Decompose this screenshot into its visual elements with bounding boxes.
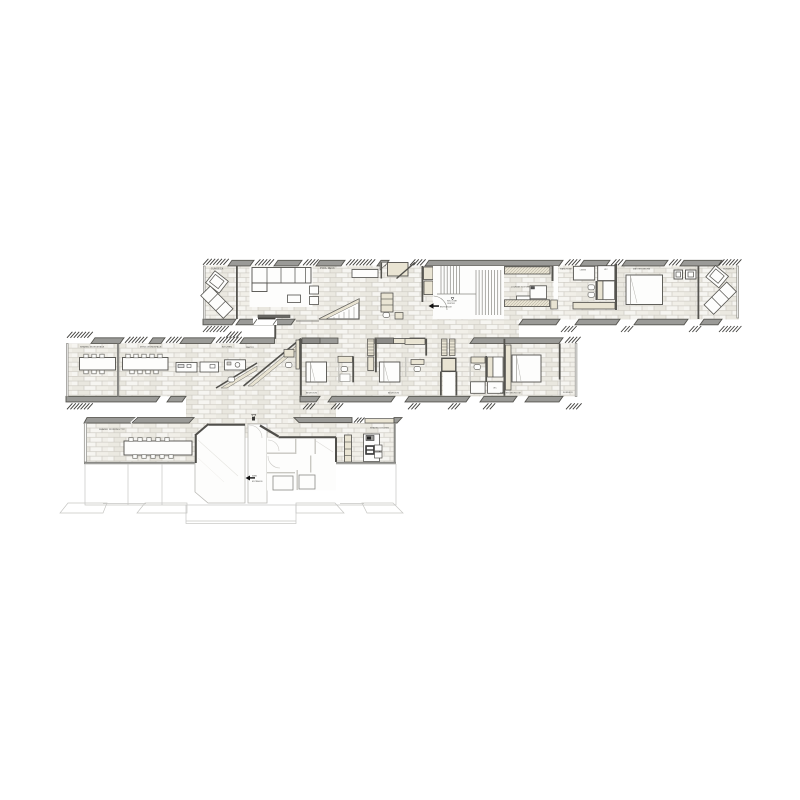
svg-text:BEDROOM: BEDROOM bbox=[306, 392, 317, 394]
svg-text:LINEN: LINEN bbox=[580, 270, 587, 272]
svg-text:SUNDECK: SUNDECK bbox=[723, 269, 735, 271]
svg-text:SUNDECK: SUNDECK bbox=[211, 268, 224, 271]
svg-text:LOUNGE TO TYPE: LOUNGE TO TYPE bbox=[511, 286, 530, 288]
svg-text:MAIN: MAIN bbox=[252, 475, 257, 478]
svg-text:MTNG WORKSPACE: MTNG WORKSPACE bbox=[140, 346, 162, 349]
svg-text:BEDROOM: BEDROOM bbox=[388, 392, 399, 394]
svg-text:MASTER BEDRM: MASTER BEDRM bbox=[633, 267, 651, 270]
svg-text:CENTER: CENTER bbox=[447, 303, 456, 305]
svg-text:PANTRY: PANTRY bbox=[246, 346, 255, 349]
svg-text:MASTER BEDROOM: MASTER BEDROOM bbox=[500, 391, 521, 394]
svg-text:WARDROBE: WARDROBE bbox=[560, 267, 573, 270]
svg-text:WC: WC bbox=[604, 269, 608, 271]
svg-text:SHARED WORKING TYP.: SHARED WORKING TYP. bbox=[99, 428, 126, 431]
svg-text:SUNDECK: SUNDECK bbox=[563, 392, 574, 394]
svg-text:KITCHEN: KITCHEN bbox=[222, 347, 232, 349]
svg-text:WC: WC bbox=[493, 388, 497, 390]
svg-text:SHARED KITCHEN: SHARED KITCHEN bbox=[370, 427, 390, 430]
svg-text:POOL DECK: POOL DECK bbox=[320, 267, 335, 270]
svg-text:ENTRANCE: ENTRANCE bbox=[252, 480, 263, 483]
svg-text:SHARED WORKSPACE: SHARED WORKSPACE bbox=[80, 346, 105, 349]
